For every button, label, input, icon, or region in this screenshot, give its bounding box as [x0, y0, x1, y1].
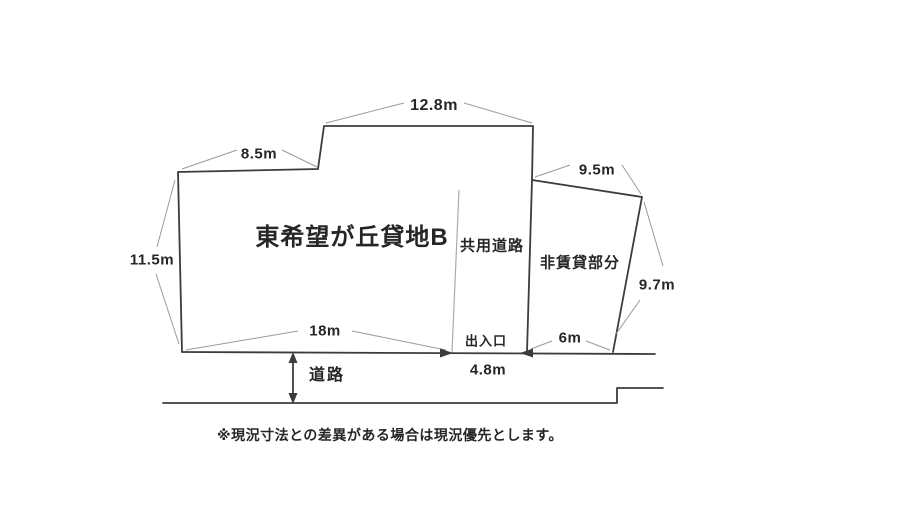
- land-survey-diagram: 12.8m 8.5m 9.5m 11.5m 9.7m 18m 6m 4.8m 東…: [0, 0, 900, 515]
- dimension-bottom-main: 18m: [309, 324, 341, 339]
- leader-11-5-lower: [156, 274, 179, 344]
- leader-9-5-left: [535, 165, 570, 177]
- dimension-top-left: 8.5m: [241, 147, 277, 162]
- dimension-bottom-right: 6m: [559, 331, 582, 346]
- road-label: 道路: [309, 368, 345, 384]
- dimension-right: 9.7m: [639, 278, 675, 293]
- non-rental-label: 非賃貸部分: [540, 256, 620, 271]
- road-width-arrowhead-up: [289, 352, 298, 363]
- leader-6-left: [531, 341, 552, 349]
- dimension-left: 11.5m: [130, 253, 174, 268]
- shared-road-label: 共用道路: [460, 239, 524, 254]
- leader-8-5-right: [282, 150, 317, 167]
- entrance-arrow-left: [440, 349, 453, 358]
- footnote: ※現況寸法との差異がある場合は現況優先とします。: [217, 428, 563, 442]
- left-boundary-line: [178, 172, 182, 352]
- shared-road-divider-line: [452, 190, 459, 352]
- entrance-label: 出入口: [465, 335, 507, 348]
- leader-11-5-upper: [157, 180, 175, 247]
- leader-9-7-upper: [644, 202, 663, 266]
- dimension-top: 12.8m: [410, 98, 458, 114]
- leader-8-5-left: [182, 150, 237, 169]
- leader-6-right: [586, 341, 610, 350]
- dimension-entrance-width: 4.8m: [470, 363, 506, 378]
- leader-12-8-right: [464, 103, 532, 123]
- bottom-boundary-line: [182, 352, 655, 354]
- leader-9-5-right: [622, 165, 641, 194]
- leader-18-left: [186, 331, 298, 350]
- leader-12-8-left: [326, 103, 404, 123]
- leader-18-right: [352, 331, 446, 350]
- road-edge-line: [163, 388, 663, 403]
- dimension-top-right: 9.5m: [579, 163, 615, 178]
- main-parcel-label: 東希望が丘貸地B: [255, 226, 448, 250]
